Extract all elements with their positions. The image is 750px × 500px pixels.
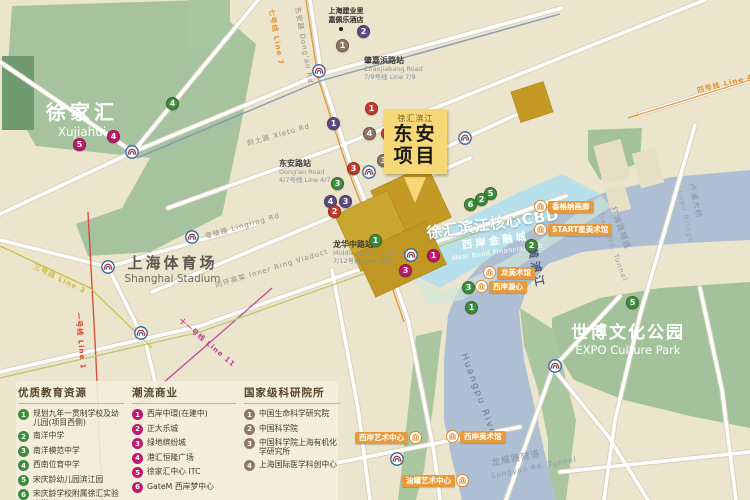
culture-badge-label: 西岸美术馆	[460, 431, 506, 443]
legend-item-number: 2	[132, 424, 143, 435]
map-marker: 1	[465, 301, 478, 314]
metro-icon	[125, 145, 139, 159]
museum-icon	[534, 200, 547, 213]
legend-item-number: 5	[18, 475, 29, 486]
legend-item-number: 4	[132, 453, 143, 464]
legend-item-label: 南洋中学	[33, 431, 64, 440]
legend-item-label: 上海国际医学科创中心	[259, 460, 337, 469]
map-marker: 3	[339, 195, 352, 208]
legend-item: 6GateM 西岸梦中心	[132, 482, 236, 493]
map-marker: 3	[347, 162, 360, 175]
metro-icon	[101, 260, 115, 274]
legend-item-label: 南洋模范中学	[33, 446, 80, 455]
legend-title: 国家级科研院所	[244, 385, 340, 404]
legend-item-number: 3	[132, 438, 143, 449]
legend-item: 4上海国际医学科创中心	[244, 460, 340, 471]
legend-item: 5徐家汇中心 ITC	[132, 467, 236, 478]
legend-column: 优质教育资源1规划九年一贯制学校及幼儿园(项目西侧)2南洋中学3南洋模范中学4西…	[18, 385, 124, 500]
legend-item-number: 4	[18, 460, 29, 471]
museum-icon	[446, 430, 459, 443]
map-marker: 2	[357, 25, 370, 38]
legend-item: 2中国科学院	[244, 424, 340, 435]
legend-item: 1西岸中環(在建中)	[132, 409, 236, 420]
legend-panel: 优质教育资源1规划九年一贯制学校及幼儿园(项目西侧)2南洋中学3南洋模范中学4西…	[16, 381, 338, 500]
culture-badge: 龙美术馆	[482, 266, 535, 279]
legend-item-label: 西南位育中学	[33, 460, 80, 469]
map-marker: 5	[626, 296, 639, 309]
culture-badge: 香格纳画廊	[533, 200, 594, 213]
museum-icon	[456, 474, 469, 487]
culture-badge-label: START星美术馆	[548, 224, 612, 236]
legend-title: 优质教育资源	[18, 385, 124, 404]
map-marker: 4	[166, 97, 179, 110]
culture-badge-label: 西岸漩心	[489, 281, 527, 293]
museum-icon	[475, 280, 488, 293]
museum-icon	[483, 266, 496, 279]
legend-item-label: 中国生命科学研究院	[259, 409, 329, 418]
map-marker: 4	[363, 127, 376, 140]
legend-item-label: 西岸中環(在建中)	[147, 409, 208, 418]
legend-item-number: 6	[132, 482, 143, 493]
expo-label-cn: 世博文化公园	[548, 318, 708, 343]
legend-item-label: 中国科学院上海有机化学研究所	[259, 438, 340, 457]
metro-station-label: 东安路站Dong'an Road4/7号线 Line 4/7	[279, 159, 331, 185]
culture-badge-label: 龙美术馆	[497, 267, 535, 279]
legend-item-number: 3	[244, 438, 255, 449]
museum-icon	[534, 223, 547, 236]
legend-item-label: 绿地缤纷城	[147, 438, 186, 447]
legend-item-number: 1	[244, 409, 255, 420]
map-marker: 1	[369, 234, 382, 247]
hotel-label: 上海建业里 嘉佩乐酒店	[323, 7, 369, 25]
callout-title-line1: 东安	[386, 124, 445, 146]
legend-item-label: 宋庆龄学校附属徐汇实验小学	[33, 489, 124, 500]
culture-badge-label: 香格纳画廊	[548, 201, 594, 213]
map-marker: 3	[399, 264, 412, 277]
legend-item: 4西南位育中学	[18, 460, 124, 471]
station-line-info: 7/9号线 Line 7/9	[364, 74, 423, 82]
metro-icon	[362, 165, 376, 179]
legend-item: 3中国科学院上海有机化学研究所	[244, 438, 340, 457]
area-expo-park: 世博文化公园 EXPO Culture Park	[548, 318, 708, 357]
metro-station-label: 肇嘉浜路站Zhaojiabang Road7/9号线 Line 7/9	[364, 56, 423, 82]
culture-badge: 西岸美术馆	[445, 430, 506, 443]
metro-icon	[312, 64, 326, 78]
expo-label-en: EXPO Culture Park	[548, 343, 708, 357]
legend-item-number: 3	[18, 446, 29, 457]
map-marker: 2	[525, 239, 538, 252]
metro-icon	[404, 248, 418, 262]
hotel-label-line1: 上海建业里	[323, 7, 369, 16]
legend-item-label: 宋庆龄幼儿园滨江园	[33, 475, 103, 484]
xujiahui-label-cn: 徐家汇	[34, 96, 130, 125]
stadium-label-cn: 上海体育场	[110, 252, 235, 273]
map-marker: 3	[331, 177, 344, 190]
legend-item-label: 规划九年一贯制学校及幼儿园(项目西侧)	[33, 409, 124, 428]
metro-icon	[185, 230, 199, 244]
station-line-info: 7/12号线 Line 7/12	[333, 258, 403, 266]
map-marker: 6	[464, 198, 477, 211]
hotel-dot	[339, 27, 343, 31]
museum-icon	[409, 431, 422, 444]
legend-item-number: 4	[244, 460, 255, 471]
station-line-info: 4/7号线 Line 4/7	[279, 177, 331, 185]
legend-item-number: 2	[244, 424, 255, 435]
legend-item-number: 6	[18, 489, 29, 500]
project-callout: 徐汇滨江 东安 项目	[384, 109, 447, 174]
hotel-label-line2: 嘉佩乐酒店	[323, 16, 369, 25]
metro-icon	[458, 131, 472, 145]
legend-item: 3南洋模范中学	[18, 446, 124, 457]
legend-column: 潮流商业1西岸中環(在建中)2正大乐城3绿地缤纷城4港汇恒隆广场5徐家汇中心 I…	[132, 385, 236, 500]
legend-item: 3绿地缤纷城	[132, 438, 236, 449]
location-map: 徐家汇 Xujiahui 上海体育场 Shanghai Stadium 世博文化…	[0, 0, 750, 500]
map-marker: 1	[327, 117, 340, 130]
legend-item-number: 5	[132, 467, 143, 478]
map-marker: 4	[107, 130, 120, 143]
map-marker: 1	[336, 39, 349, 52]
legend-item-label: 中国科学院	[259, 424, 298, 433]
legend-item-label: 港汇恒隆广场	[147, 453, 194, 462]
legend-item-label: GateM 西岸梦中心	[147, 482, 214, 491]
map-marker: 1	[365, 102, 378, 115]
legend-item: 5宋庆龄幼儿园滨江园	[18, 475, 124, 486]
legend-item: 4港汇恒隆广场	[132, 453, 236, 464]
legend-item-number: 1	[132, 409, 143, 420]
metro-station-label: 龙华中路站Middle Longhua Road7/12号线 Line 7/12	[333, 240, 403, 266]
legend-column: 国家级科研院所1中国生命科学研究院2中国科学院3中国科学院上海有机化学研究所4上…	[244, 385, 340, 500]
culture-badge: START星美术馆	[533, 223, 612, 236]
legend-item-number: 1	[18, 409, 29, 420]
legend-title: 潮流商业	[132, 385, 236, 404]
legend-item-label: 正大乐城	[147, 424, 178, 433]
metro-icon	[390, 452, 404, 466]
callout-title-line2: 项目	[386, 146, 445, 168]
legend-item-number: 2	[18, 431, 29, 442]
metro-icon	[548, 359, 562, 373]
culture-badge: 油罐艺术中心	[402, 474, 470, 487]
culture-badge-label: 油罐艺术中心	[402, 475, 455, 487]
callout-pointer	[404, 177, 426, 203]
culture-badge: 西岸漩心	[474, 280, 527, 293]
metro-icon	[134, 326, 148, 340]
legend-item: 1中国生命科学研究院	[244, 409, 340, 420]
map-marker: 2	[328, 205, 341, 218]
culture-badge: 西岸艺术中心	[355, 431, 423, 444]
culture-badge-label: 西岸艺术中心	[355, 432, 408, 444]
legend-item: 2南洋中学	[18, 431, 124, 442]
legend-item-label: 徐家汇中心 ITC	[147, 467, 201, 476]
legend-item: 2正大乐城	[132, 424, 236, 435]
map-marker: 1	[427, 249, 440, 262]
legend-item: 1规划九年一贯制学校及幼儿园(项目西侧)	[18, 409, 124, 428]
legend-item: 6宋庆龄学校附属徐汇实验小学	[18, 489, 124, 500]
map-marker: 5	[73, 138, 86, 151]
